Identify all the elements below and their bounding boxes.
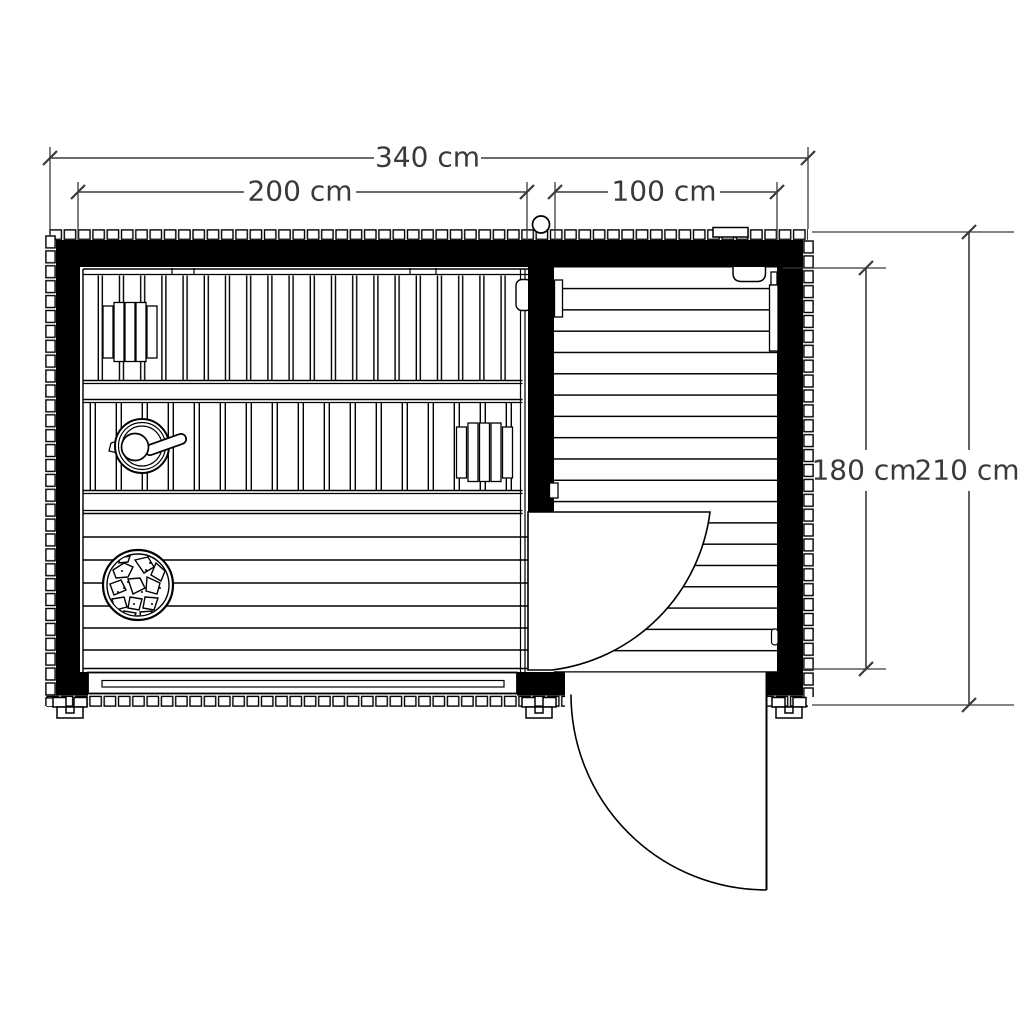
sauna-door-hinge [550,483,559,498]
partition-door-frame [555,280,563,317]
dim-total-width-label: 340 cm [375,141,480,174]
dim-total-depth-label: 210 cm [914,454,1019,487]
dim-sauna-width-label: 200 cm [247,175,352,208]
background [0,0,1024,1024]
headrest-upper-bench [103,303,157,362]
wall-bottom-right-corner [767,672,803,696]
roof-vent-bracket [713,228,748,238]
dim-interior-depth-label: 180 cm [811,454,916,487]
floor-plan-canvas: 340 cm 200 cm 100 cm 180 cm 210 cm [0,0,1024,1024]
terrace-light [733,267,766,282]
sauna-window-band [88,673,517,694]
dim-terrace-width-label: 100 cm [611,175,716,208]
sauna-floor-plan-drawing: 340 cm 200 cm 100 cm 180 cm 210 cm [0,0,1024,1024]
wall-right [777,240,803,696]
wall-bottom-mid-post [517,672,565,696]
right-wall-catch [772,629,779,645]
headrest-lower-bench [457,423,513,482]
chimney-vent [533,216,550,233]
wall-top [56,240,803,267]
wall-bottom-left-corner [56,672,88,696]
wall-partition [528,240,554,512]
wall-left [56,240,80,672]
right-wall-window [770,272,779,351]
sauna-heater [103,550,173,620]
